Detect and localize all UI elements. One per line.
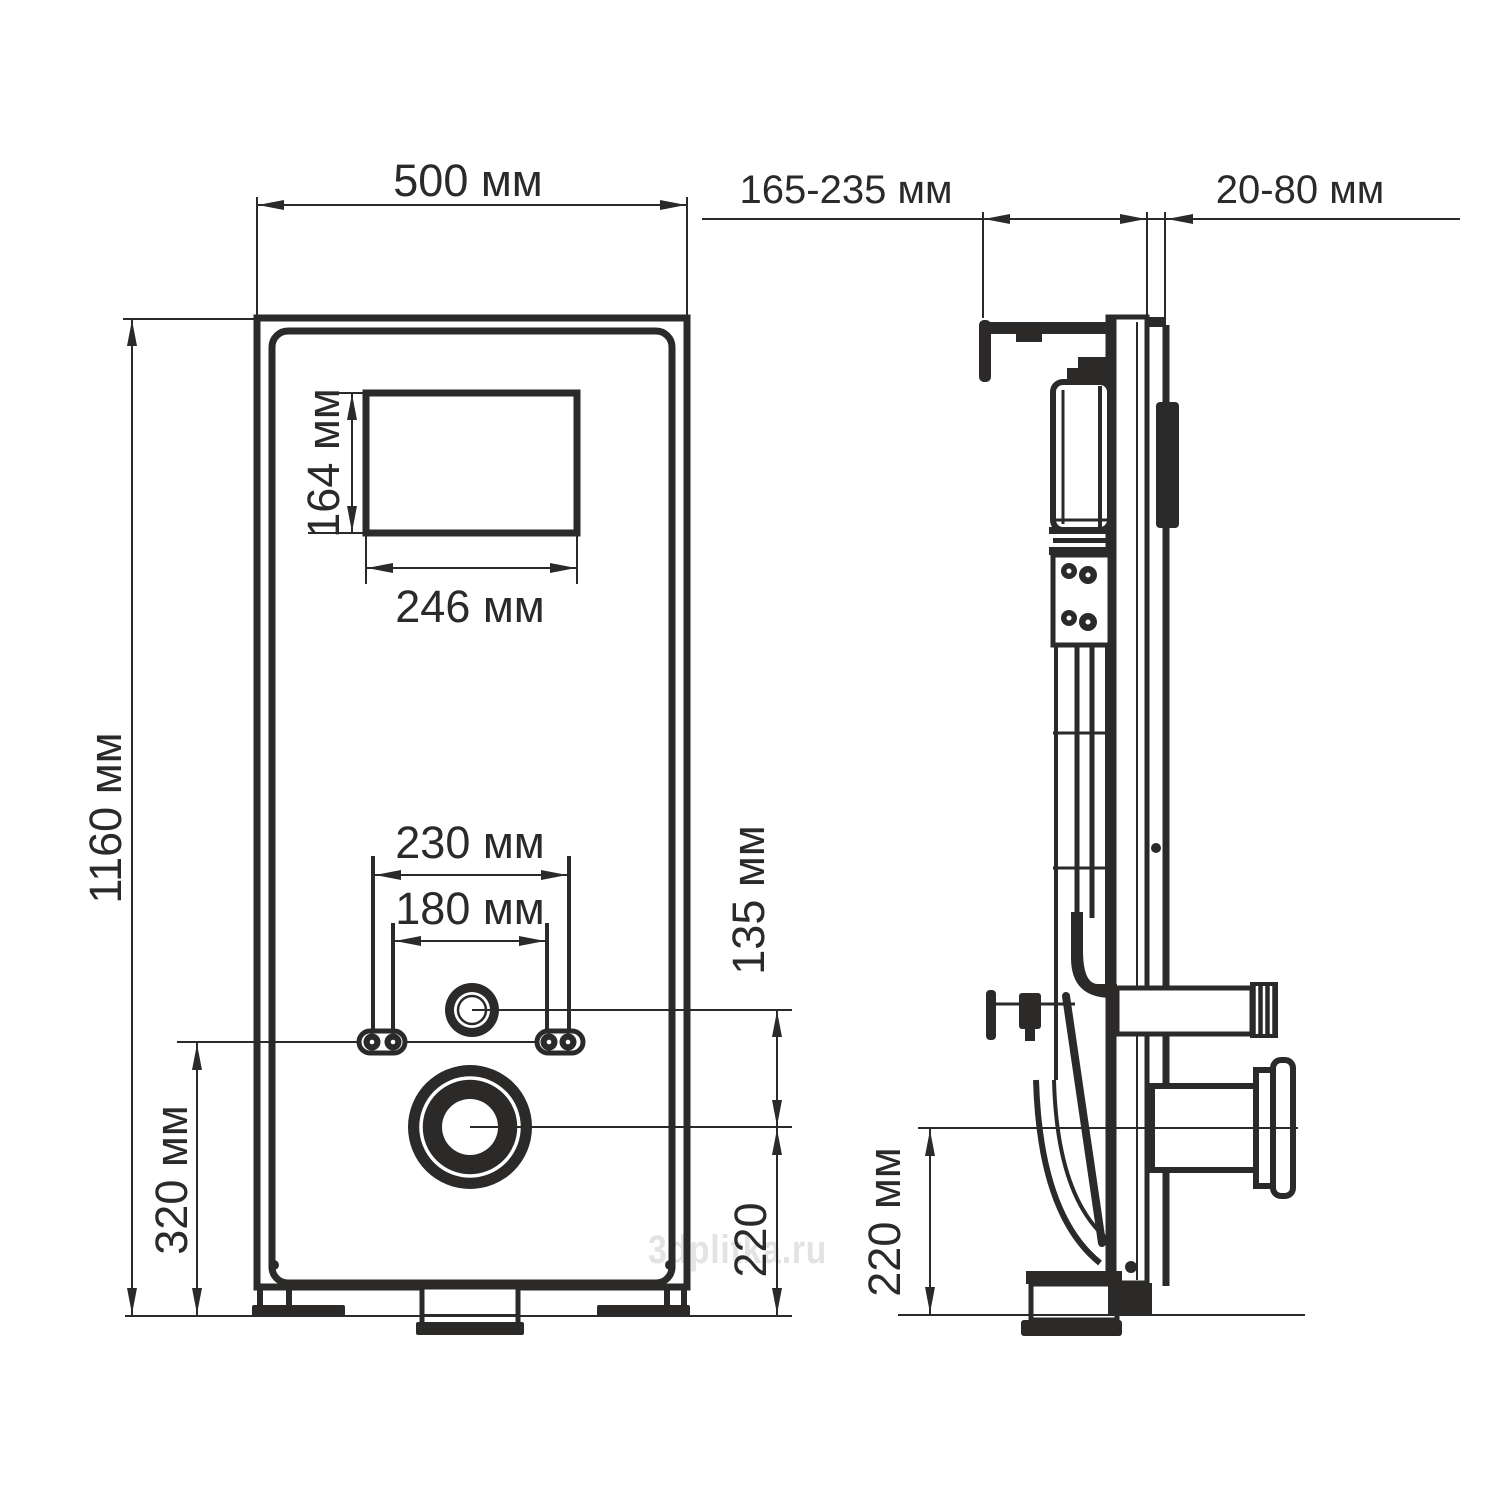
bolt-hole-dot: [370, 1040, 375, 1045]
label-mounting-depth: 165-235 мм: [740, 168, 953, 212]
inlet-hook: [986, 990, 996, 1040]
label-bolt-span-inner: 180 мм: [395, 883, 544, 934]
foot-post: [286, 1287, 292, 1305]
valve-band: [1053, 538, 1110, 543]
mounting-slot-right: [537, 1031, 583, 1053]
floor-lines: [125, 1315, 1305, 1316]
bolt-hole-dot: [566, 1040, 571, 1045]
foot-post: [664, 1287, 670, 1305]
inlet-valve: [1019, 993, 1041, 1029]
installation-frame-drawing: 500 мм 1160 мм 164 мм 246 мм 230 мм 180 …: [0, 0, 1500, 1500]
label-outlet-height-side: 220 мм: [859, 1147, 910, 1296]
inlet-valve-stub: [1025, 1029, 1035, 1041]
access-opening: [366, 393, 577, 533]
label-opening-width: 246 мм: [395, 581, 544, 632]
wall-screw-dot: [1151, 843, 1161, 853]
frame-top-cap: [1147, 317, 1166, 327]
bracket-clamp: [1016, 334, 1042, 342]
frame-cross-members: [1053, 733, 1110, 868]
bolt-hole-dot: [391, 1040, 396, 1045]
bottom-drain-stub: [416, 1287, 524, 1335]
bolt-hole-dot: [547, 1040, 552, 1045]
flush-plate-edge: [1156, 402, 1179, 528]
technical-drawing-page: 500 мм 1160 мм 164 мм 246 мм 230 мм 180 …: [0, 0, 1500, 1500]
flush-pipe: [1117, 988, 1252, 1034]
cistern-section: [1049, 357, 1113, 645]
label-wall-finish-thickness: 20-80 мм: [1216, 168, 1384, 212]
side-view: [979, 317, 1293, 1336]
stub-outline: [422, 1287, 518, 1325]
flush-pipe-to-wc: [1117, 982, 1278, 1038]
keyhole-dot: [1086, 620, 1091, 625]
cistern-cap-step: [1078, 357, 1110, 369]
pivot-dot: [1125, 1261, 1137, 1273]
keyhole-dot: [1067, 616, 1072, 621]
flush-pipe-walls: [1077, 645, 1092, 930]
water-inlet-fitting: [986, 990, 1075, 1041]
valve-band: [1049, 527, 1113, 534]
label-panel-height: 1160 мм: [80, 732, 131, 903]
label-opening-height: 164 мм: [298, 388, 349, 537]
mounting-slot-left: [359, 1031, 405, 1053]
foot-bar-right: [597, 1305, 690, 1316]
label-panel-width: 500 мм: [393, 155, 542, 206]
support-strut: [1066, 996, 1102, 1243]
stub-cap: [416, 1322, 524, 1335]
panel-pin-left: [269, 1260, 279, 1270]
site-watermark: 3dplitka.ru: [648, 1228, 827, 1273]
label-bolt-span-outer: 230 мм: [395, 817, 544, 868]
label-bolt-line-to-floor: 320 мм: [146, 1105, 197, 1254]
label-inlet-to-outlet: 135 мм: [723, 825, 774, 974]
keyhole-dot: [1067, 569, 1072, 574]
channel-foot: [1108, 1283, 1152, 1316]
foot-post: [681, 1287, 687, 1305]
base-bar: [1021, 1320, 1122, 1336]
keyhole-dot: [1086, 573, 1091, 578]
bracket-arm: [983, 322, 1111, 334]
foot-post: [257, 1287, 263, 1305]
foot-bar-left: [252, 1305, 345, 1316]
